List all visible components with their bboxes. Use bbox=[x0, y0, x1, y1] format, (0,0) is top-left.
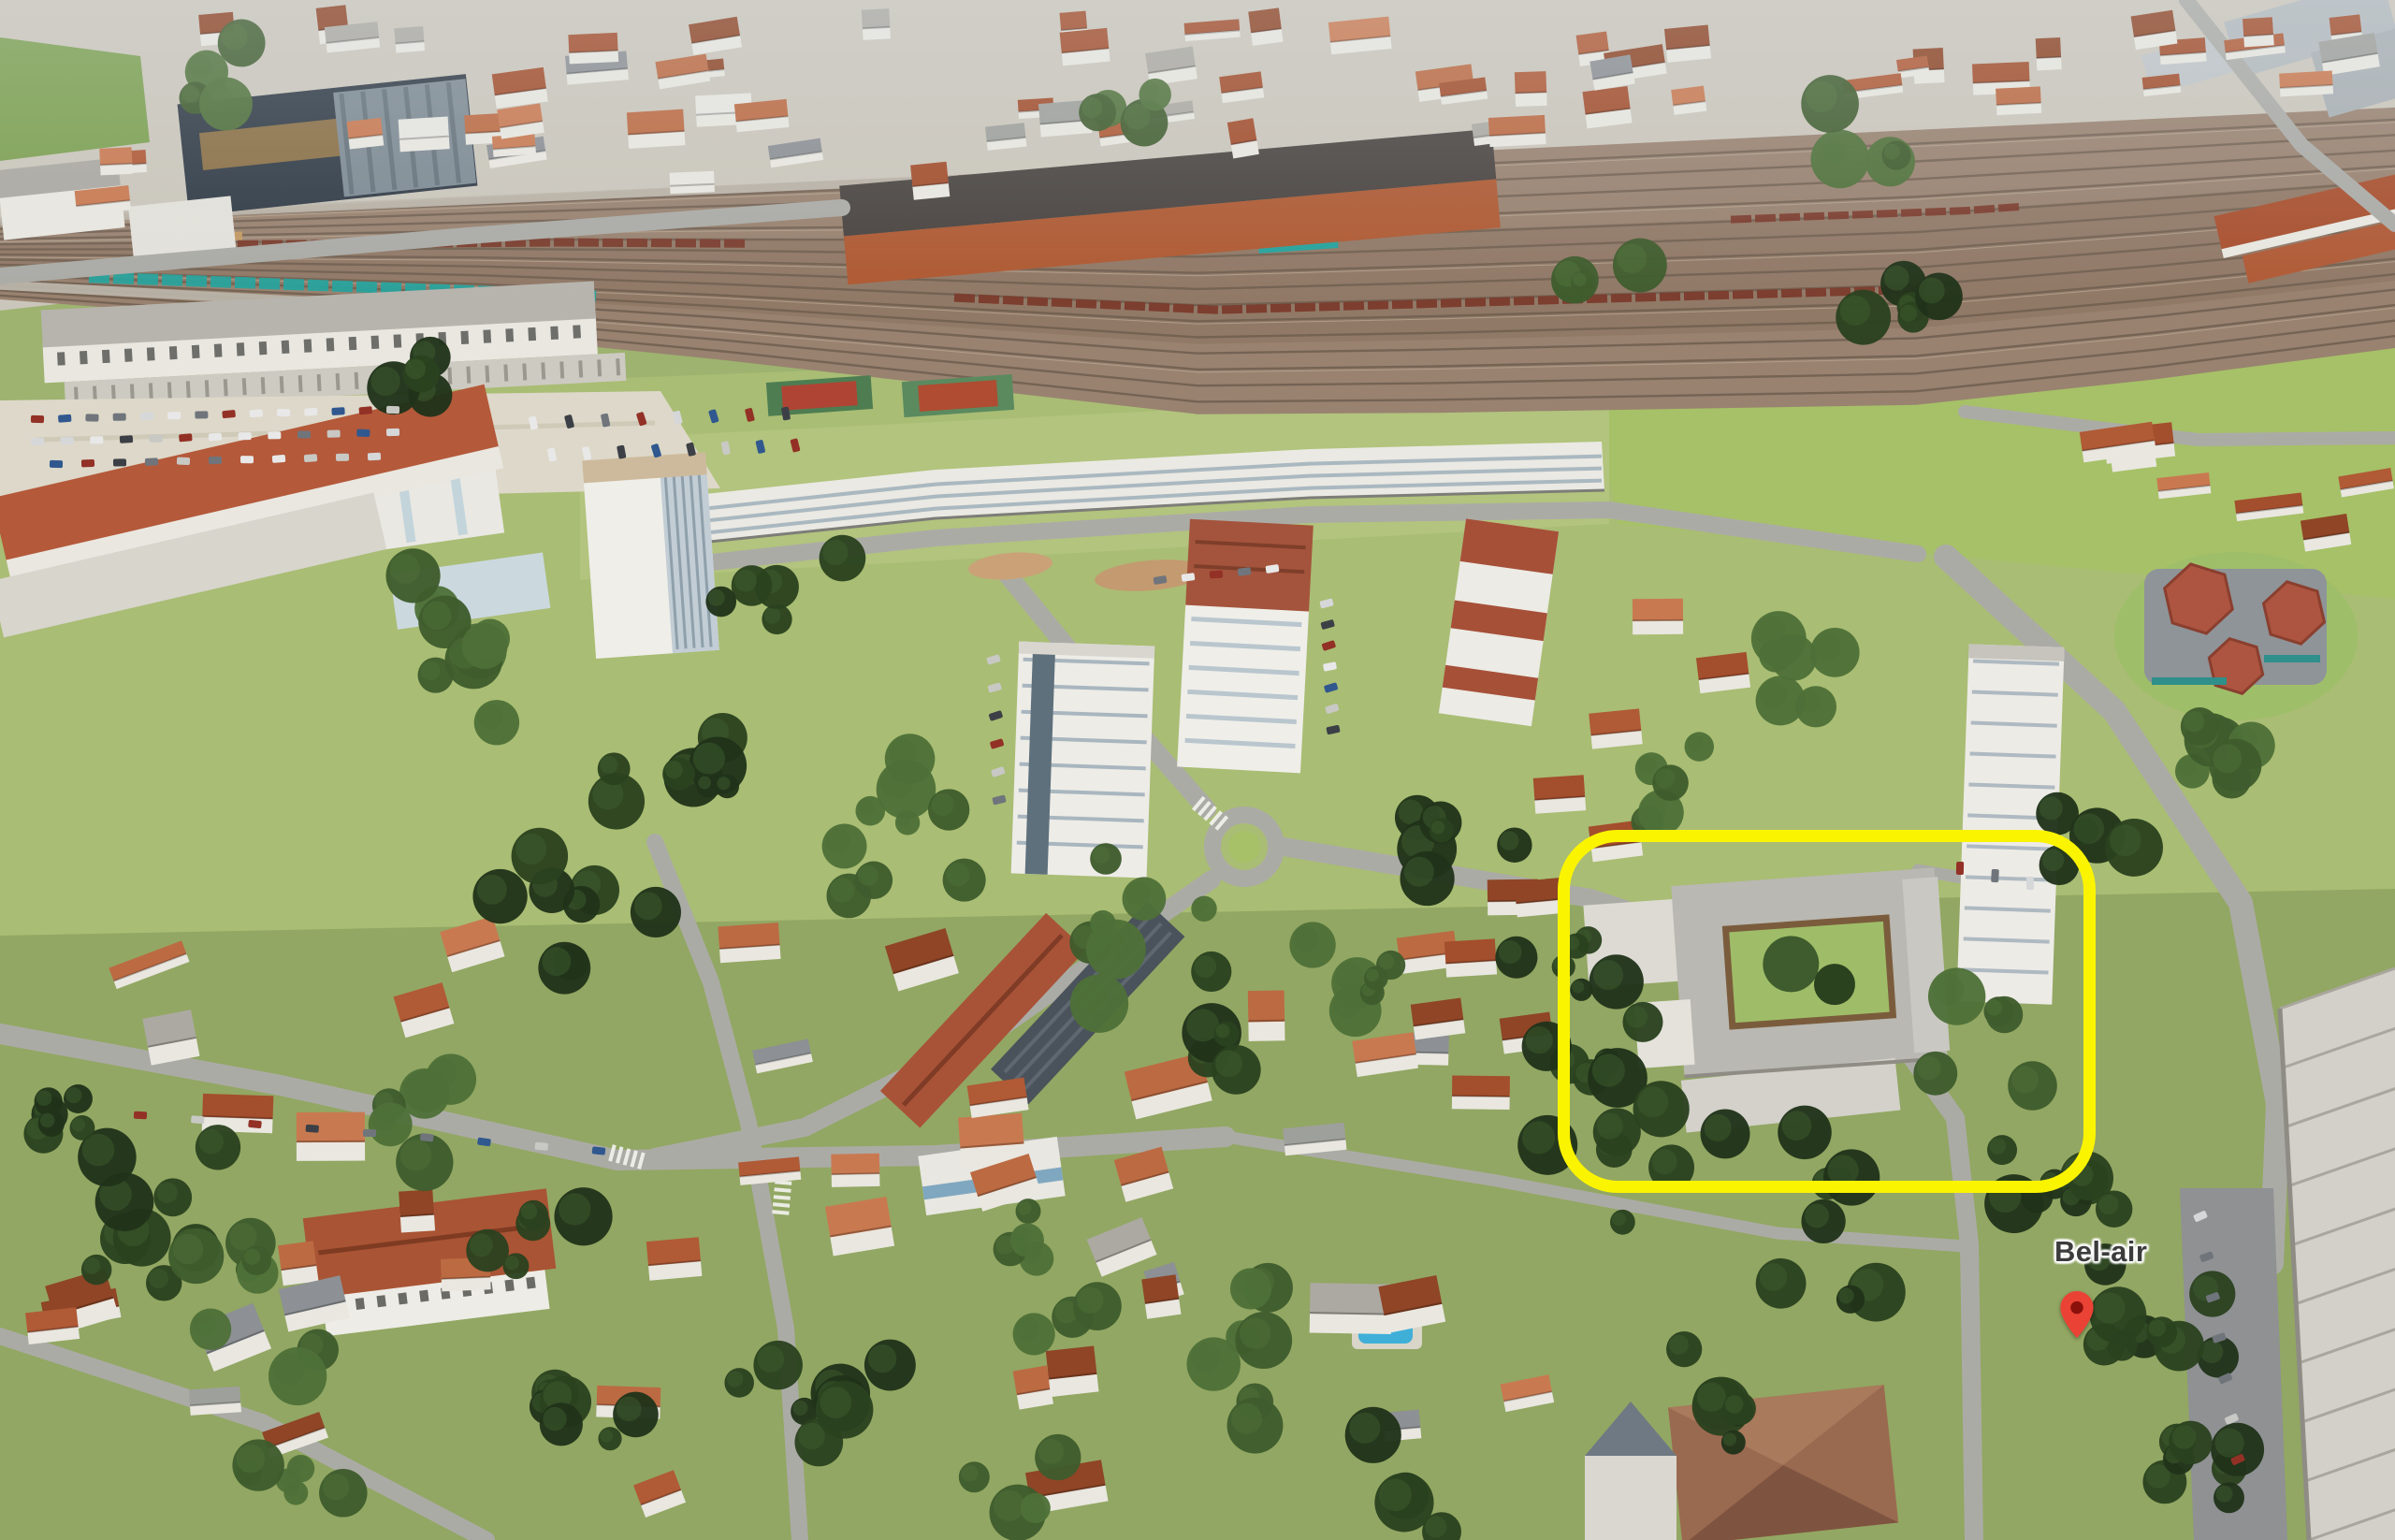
atmosphere bbox=[0, 0, 2395, 299]
aerial-3d-view[interactable]: Bel-air bbox=[0, 0, 2395, 1540]
kindergarten-building bbox=[2114, 552, 2358, 720]
aerial-scene bbox=[0, 0, 2395, 1540]
tower-block bbox=[582, 452, 718, 659]
pin-hole bbox=[2070, 1301, 2083, 1315]
pin-body bbox=[2060, 1291, 2093, 1338]
tower-block bbox=[1011, 642, 1155, 879]
tower-block-red-roof bbox=[1177, 519, 1314, 774]
bel-air-label[interactable]: Bel-air bbox=[2054, 1235, 2147, 1269]
bel-air-marker[interactable] bbox=[2060, 1291, 2094, 1338]
location-pin-icon[interactable] bbox=[2060, 1291, 2094, 1338]
